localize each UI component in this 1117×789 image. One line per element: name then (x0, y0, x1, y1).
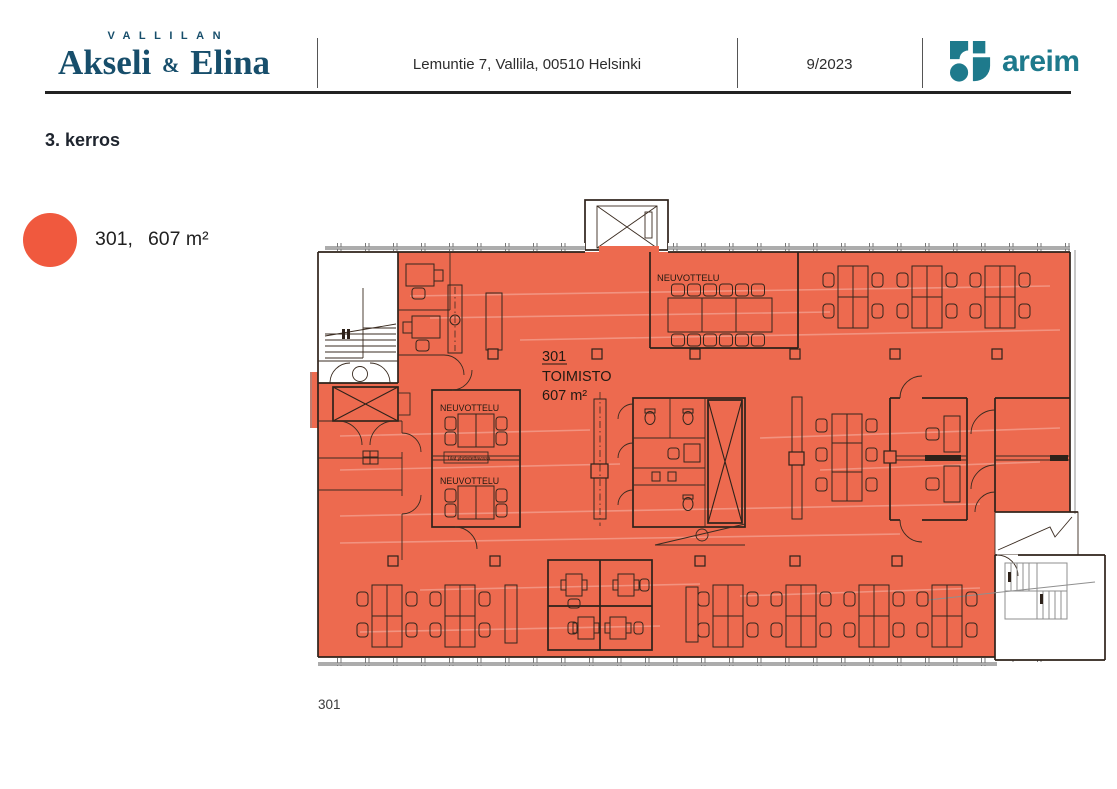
areim-wordmark: areim (1002, 45, 1080, 79)
label-combine-note: Tilat yhdistettävissä (447, 456, 491, 462)
ramp-area (995, 512, 1078, 555)
page: VALLILAN Akseli & Elina Lemuntie 7, Vall… (0, 0, 1117, 789)
elevator-protrusion (585, 200, 668, 254)
brand-name-1: Akseli (58, 43, 151, 82)
header-rule (45, 91, 1071, 94)
brand-ampersand: & (160, 53, 182, 77)
areim-icon (950, 41, 992, 83)
brand-name: Akseli & Elina (38, 44, 290, 84)
areim-logo: areim (950, 41, 1080, 83)
label-room-type: TOIMISTO (542, 369, 612, 385)
label-unit-number: 301 (542, 349, 566, 365)
header-divider (922, 38, 923, 88)
label-neuvottelu-mid-2: NEUVOTTELU (440, 476, 499, 486)
highlight-area (310, 252, 1070, 657)
floor-title: 3. kerros (45, 130, 120, 151)
legend-unit: 301, (95, 228, 133, 250)
legend-dot (23, 213, 77, 267)
brand-name-2: Elina (190, 43, 270, 82)
legend-label: 301,607 m² (95, 228, 209, 251)
brand-top-text: VALLILAN (38, 30, 290, 42)
stairwell-top-left (318, 252, 398, 383)
label-room-area: 607 m² (542, 388, 587, 404)
brand-logo: VALLILAN Akseli & Elina (38, 30, 290, 84)
plan-caption: 301 (318, 697, 341, 712)
header-date: 9/2023 (737, 56, 922, 73)
label-neuvottelu-top: NEUVOTTELU (657, 273, 720, 283)
header-address: Lemuntie 7, Vallila, 00510 Helsinki (317, 56, 737, 73)
floor-plan: NEUVOTTELU 301 TOIMISTO 607 m² NEUVOTTEL… (298, 188, 1112, 680)
label-neuvottelu-mid-1: NEUVOTTELU (440, 403, 499, 413)
legend-area: 607 m² (148, 228, 209, 250)
